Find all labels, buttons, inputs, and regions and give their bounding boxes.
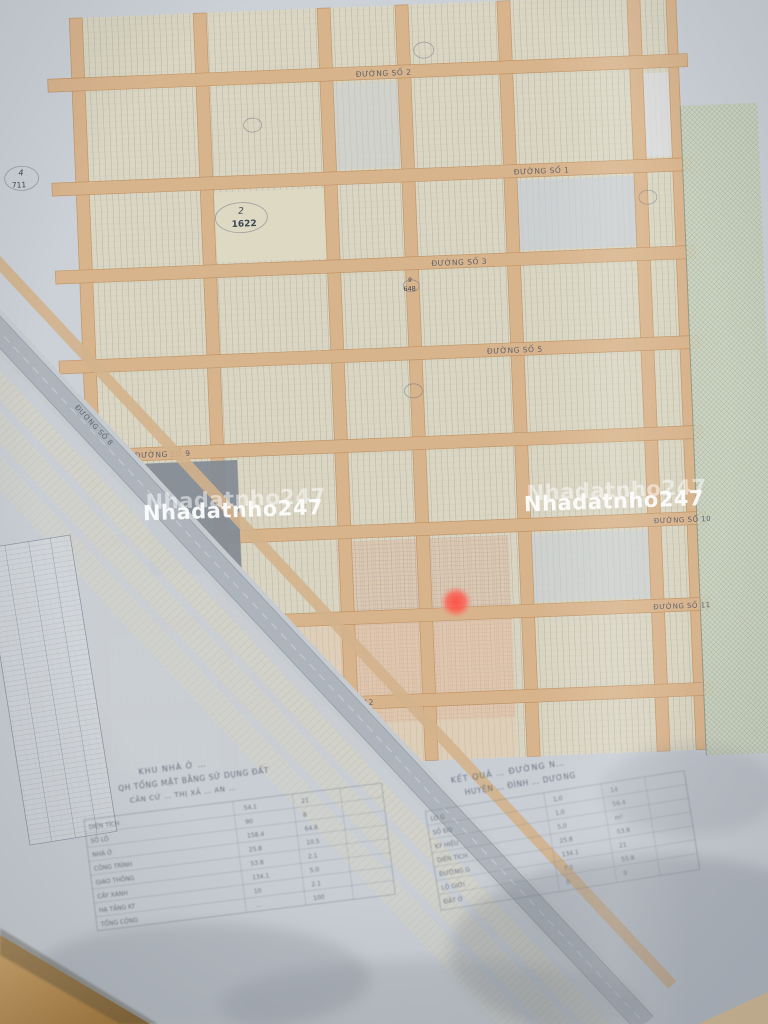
map-photo: 2 1622 4 711 9 648 ĐƯỜNG SỐ 2 ĐƯỜNG SỐ 1… [0, 0, 768, 1024]
vignette [0, 0, 768, 1024]
cadastral-map-canvas: 2 1622 4 711 9 648 ĐƯỜNG SỐ 2 ĐƯỜNG SỐ 1… [0, 0, 768, 1024]
